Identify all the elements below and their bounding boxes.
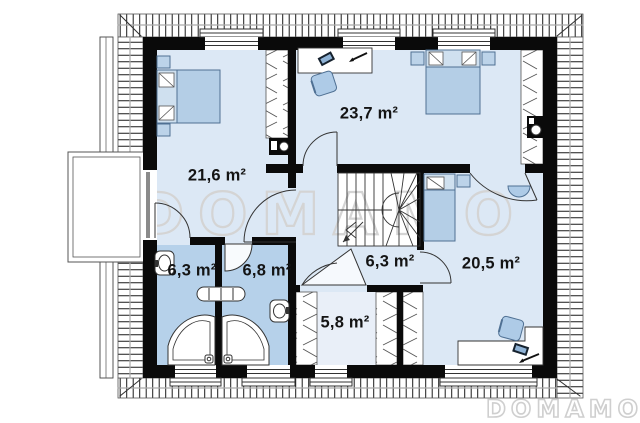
room-label-hall: 6,3 m² bbox=[366, 253, 415, 272]
wall-lamp bbox=[508, 186, 530, 197]
nightstand bbox=[411, 52, 424, 65]
desk-bedroom-3 bbox=[458, 316, 543, 365]
nightstand bbox=[157, 56, 170, 68]
room-label-bedroom-3: 20,5 m² bbox=[462, 255, 520, 274]
desk-chair bbox=[310, 70, 337, 97]
plan-linework-layer bbox=[0, 0, 640, 423]
window bbox=[200, 29, 263, 50]
window bbox=[170, 365, 221, 386]
chimney-blocks bbox=[269, 116, 543, 155]
room-label-wardrobe: 5,8 m² bbox=[321, 314, 370, 333]
closet-wardrobe-right bbox=[376, 292, 397, 365]
corner-bathtub bbox=[168, 315, 215, 365]
room-label-bathroom-2: 6,8 m² bbox=[243, 262, 292, 281]
nightstand bbox=[457, 175, 470, 187]
window bbox=[440, 365, 537, 386]
closet-bedroom-3 bbox=[403, 292, 423, 365]
closet-strips bbox=[266, 50, 543, 365]
balcony bbox=[68, 152, 145, 262]
door-hall-wardrobe bbox=[302, 249, 366, 285]
door-hall-bedroom-2 bbox=[303, 132, 337, 166]
desk-chair bbox=[498, 316, 525, 342]
closet-wardrobe-left bbox=[296, 292, 317, 365]
door-hall-bedroom-3 bbox=[420, 252, 451, 283]
wall-exterior-right bbox=[543, 37, 557, 378]
nightstand bbox=[157, 124, 170, 136]
window bbox=[433, 29, 495, 50]
staircase bbox=[338, 173, 420, 246]
door-hall-bedroom-1 bbox=[244, 190, 296, 242]
room-label-bedroom-2: 23,7 m² bbox=[340, 105, 398, 124]
towel-radiator bbox=[197, 287, 245, 301]
desk-bedroom-2 bbox=[298, 48, 372, 97]
bed-single bbox=[424, 174, 470, 241]
sink bbox=[270, 300, 289, 322]
nightstand bbox=[482, 52, 495, 65]
watermark-bottom-right: DOMAMO bbox=[486, 395, 640, 423]
door-bedroom1-bath1 bbox=[155, 203, 190, 238]
room-label-bedroom-1: 21,6 m² bbox=[188, 167, 246, 186]
closet-bedroom-2 bbox=[521, 50, 543, 164]
window bbox=[310, 365, 352, 386]
bed-double-2 bbox=[411, 50, 495, 114]
closet-bedroom-1 bbox=[266, 50, 288, 138]
window bbox=[338, 29, 400, 50]
room-label-bathroom-1: 6,3 m² bbox=[168, 262, 217, 281]
floor-plan-canvas: DOMAMO bbox=[0, 0, 640, 423]
window bbox=[242, 365, 295, 386]
bed-double-1 bbox=[157, 56, 220, 136]
corner-bathtub bbox=[222, 315, 269, 365]
